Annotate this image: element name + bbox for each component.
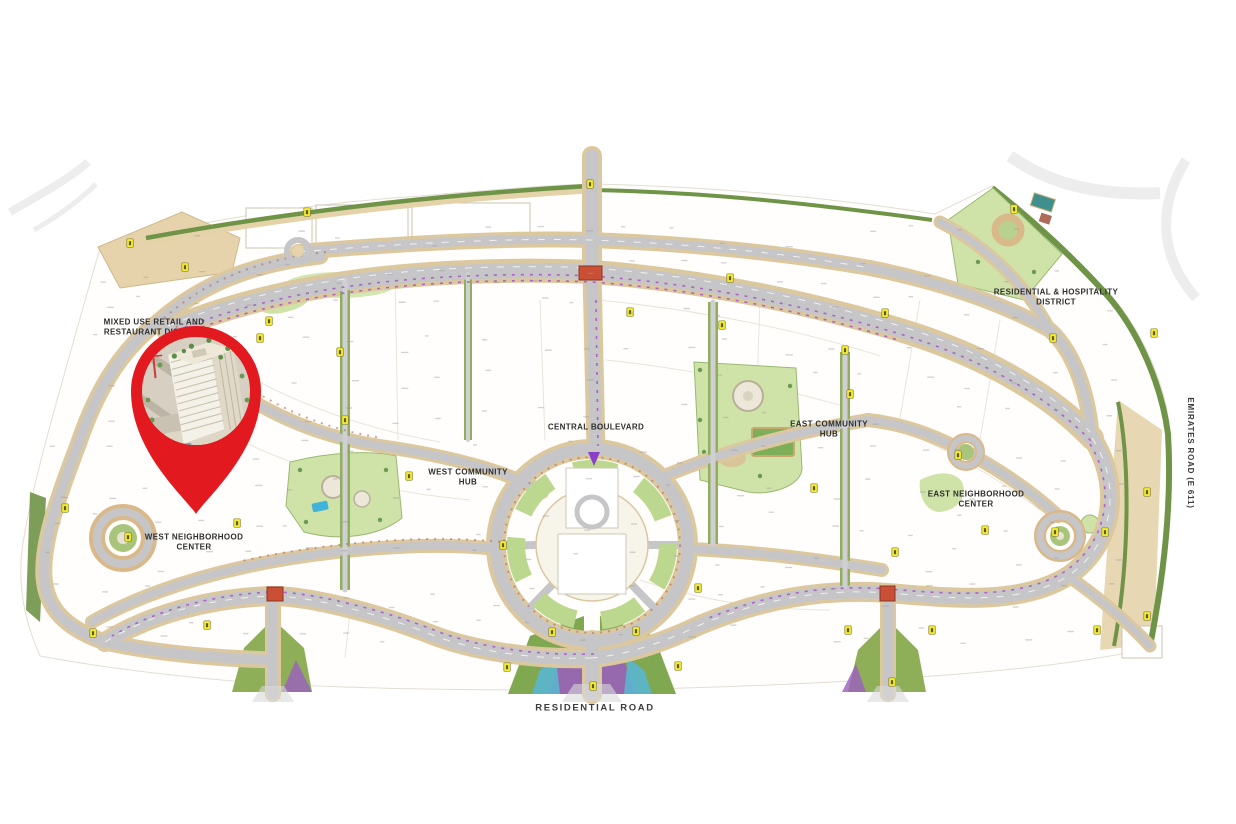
plot-number-speck: [160, 635, 167, 636]
plot-number-speck: [434, 300, 439, 301]
plot-number-speck: [288, 317, 293, 318]
plot-number-speck: [336, 282, 341, 283]
plot-number-speck: [476, 620, 481, 621]
plot-number-speck: [542, 515, 549, 516]
map-badge-number: [1054, 530, 1056, 534]
plot-number-speck: [136, 296, 140, 297]
label-line: EAST NEIGHBORHOOD: [928, 490, 1025, 499]
plot-number-speck: [761, 445, 765, 446]
plot-number-speck: [628, 312, 634, 313]
label-central-boulevard: CENTRAL BOULEVARD: [548, 422, 644, 432]
map-badge-number: [592, 684, 594, 688]
label-line: EMIRATES ROAD (E 611): [1186, 397, 1195, 508]
plot-number-speck: [1016, 564, 1022, 565]
label-residential-road: RESIDENTIAL ROAD: [535, 703, 654, 713]
plot-number-speck: [1115, 559, 1122, 560]
plot-number-speck: [347, 341, 354, 342]
plot-number-speck: [305, 421, 312, 422]
plot-number-speck: [93, 513, 98, 514]
plot-number-speck: [584, 348, 590, 349]
plot-number-speck: [545, 350, 552, 351]
plot-number-speck: [472, 550, 476, 551]
plot-number-speck: [833, 641, 840, 642]
plot-number-speck: [106, 446, 112, 447]
plot-number-speck: [584, 529, 590, 530]
map-badge-number: [677, 664, 679, 668]
plot-number-speck: [435, 418, 441, 419]
map-badge-number: [847, 628, 849, 632]
plot-number-speck: [821, 283, 827, 284]
label-line: CENTRAL BOULEVARD: [548, 422, 644, 431]
plot-number-speck: [964, 388, 970, 389]
plot-number-speck: [493, 605, 500, 606]
plot-number-speck: [723, 417, 729, 418]
plot-number-speck: [777, 281, 783, 282]
plot-number-speck: [1053, 372, 1058, 373]
plot-number-speck: [1050, 522, 1054, 523]
plot-number-speck: [786, 354, 793, 355]
plot-number-speck: [674, 555, 679, 556]
plot-number-speck: [689, 636, 696, 637]
plot-number-speck: [926, 585, 933, 586]
plot-number-speck: [485, 370, 491, 371]
plot-number-speck: [1016, 457, 1022, 458]
plot-number-speck: [767, 488, 772, 489]
plot-number-speck: [586, 230, 593, 231]
plot-number-speck: [106, 626, 113, 627]
map-badge-number: [844, 348, 846, 352]
plot-number-speck: [285, 264, 290, 265]
plot-number-speck: [1014, 228, 1020, 229]
plot-number-speck: [568, 441, 572, 442]
plot-number-speck: [335, 237, 340, 238]
plot-number-speck: [393, 497, 399, 498]
map-badge-number: [1104, 530, 1106, 534]
map-badge-number: [344, 418, 346, 422]
plot-number-speck: [538, 226, 544, 227]
plot-number-speck: [1107, 415, 1112, 416]
map-badge-number: [931, 628, 933, 632]
map-badge-number: [184, 265, 186, 269]
plot-number-speck: [306, 547, 313, 548]
map-badge-number: [884, 311, 886, 315]
label-residential-hospitality-district: RESIDENTIAL & HOSPITALITY DISTRICT: [994, 288, 1118, 307]
label-line: EAST COMMUNITY: [790, 420, 868, 429]
plot-number-speck: [300, 633, 307, 634]
plot-number-speck: [426, 489, 430, 490]
label-east-neighborhood-center: EAST NEIGHBORHOOD CENTER: [928, 490, 1025, 509]
plot-number-speck: [619, 634, 623, 635]
label-line: CENTER: [145, 542, 243, 552]
label-line: CENTER: [928, 499, 1025, 509]
map-badge-number: [891, 680, 893, 684]
plot-number-speck: [485, 226, 491, 227]
plot-number-speck: [529, 588, 534, 589]
plot-number-speck: [473, 444, 477, 445]
plot-number-speck: [580, 640, 586, 641]
plot-number-speck: [392, 423, 398, 424]
plot-number-speck: [425, 335, 429, 336]
plot-number-speck: [61, 497, 68, 498]
map-badge-number: [635, 629, 637, 633]
map-badge-number: [589, 182, 591, 186]
plot-number-speck: [719, 526, 724, 527]
plot-number-speck: [969, 583, 975, 584]
plot-number-speck: [199, 271, 205, 272]
plot-number-speck: [189, 622, 194, 623]
plot-number-speck: [253, 458, 260, 459]
plot-number-speck: [785, 567, 792, 568]
plot-number-speck: [909, 225, 914, 226]
map-badge-number: [729, 276, 731, 280]
plot-number-speck: [380, 641, 385, 642]
plot-number-speck: [1054, 557, 1059, 558]
plot-number-speck: [957, 406, 962, 407]
label-line: RESIDENTIAL ROAD: [535, 702, 654, 713]
plot-number-speck: [55, 523, 61, 524]
map-badge-number: [259, 336, 261, 340]
plot-number-speck: [630, 552, 636, 553]
map-badge-number: [129, 241, 131, 245]
plot-number-speck: [588, 273, 595, 274]
plot-number-speck: [818, 447, 823, 448]
plot-number-speck: [1067, 631, 1074, 632]
plot-number-speck: [957, 229, 962, 230]
plot-number-speck: [526, 559, 531, 560]
plot-number-speck: [1103, 344, 1108, 345]
plot-number-speck: [1025, 639, 1032, 640]
plot-number-speck: [333, 478, 338, 479]
plot-number-speck: [1115, 450, 1122, 451]
plot-number-speck: [681, 404, 687, 405]
plot-number-speck: [865, 478, 870, 479]
plot-number-speck: [830, 588, 837, 589]
plot-number-speck: [908, 296, 913, 297]
plot-number-speck: [195, 235, 200, 236]
plot-number-speck: [761, 586, 765, 587]
plot-number-speck: [731, 450, 738, 451]
plot-number-speck: [583, 416, 589, 417]
plot-number-speck: [1055, 488, 1060, 489]
plot-number-speck: [50, 446, 55, 447]
map-badge-number: [1013, 207, 1015, 211]
plot-number-speck: [143, 488, 148, 489]
plot-number-speck: [389, 607, 395, 608]
plot-number-speck: [1109, 583, 1115, 584]
plot-number-speck: [920, 491, 926, 492]
plot-number-speck: [873, 297, 879, 298]
plot-number-speck: [629, 585, 635, 586]
plot-number-speck: [433, 621, 438, 622]
plot-number-speck: [870, 445, 876, 446]
plot-number-speck: [1111, 379, 1117, 380]
plot-number-speck: [587, 379, 594, 380]
plot-number-speck: [633, 476, 639, 477]
map-badge-number: [206, 623, 208, 627]
plot-number-speck: [302, 440, 309, 441]
label-east-community-hub: EAST COMMUNITY HUB: [790, 420, 868, 439]
map-badge-number: [408, 474, 410, 478]
plot-number-speck: [631, 523, 637, 524]
plot-number-speck: [108, 385, 115, 386]
plot-number-speck: [108, 420, 115, 421]
plot-number-speck: [688, 598, 695, 599]
plot-number-speck: [401, 388, 408, 389]
plot-number-speck: [923, 449, 930, 450]
plot-number-speck: [954, 449, 958, 450]
plot-number-speck: [109, 498, 116, 499]
plot-number-speck: [1107, 310, 1113, 311]
plot-number-speck: [333, 299, 338, 300]
plot-number-speck: [814, 558, 819, 559]
plot-number-speck: [716, 315, 721, 316]
label-line: HUB: [790, 429, 868, 439]
plot-number-speck: [430, 594, 435, 595]
plot-number-speck: [493, 282, 500, 283]
map-badge-number: [502, 543, 504, 547]
plot-number-speck: [681, 260, 687, 261]
plot-number-speck: [482, 339, 487, 340]
plot-number-speck: [730, 624, 736, 625]
plot-number-speck: [53, 583, 59, 584]
map-badge-number: [268, 319, 270, 323]
plot-number-speck: [45, 552, 50, 553]
map-badge-number: [506, 665, 508, 669]
plot-number-speck: [870, 231, 876, 232]
map-badge-number: [1052, 336, 1054, 340]
plot-number-speck: [640, 452, 647, 453]
plot-number-speck: [873, 423, 879, 424]
plot-number-speck: [762, 412, 766, 413]
plot-number-speck: [107, 307, 114, 308]
plot-number-speck: [722, 338, 727, 339]
plot-number-speck: [1013, 606, 1019, 607]
plot-number-speck: [677, 462, 683, 463]
plot-number-speck: [432, 245, 437, 246]
plot-number-speck: [343, 632, 349, 633]
plot-number-speck: [93, 334, 98, 335]
plot-number-speck: [964, 314, 970, 315]
map-badge-number: [92, 631, 94, 635]
plot-number-speck: [720, 243, 725, 244]
plot-number-speck: [439, 270, 445, 271]
plot-number-speck: [569, 302, 573, 303]
plot-number-speck: [542, 297, 549, 298]
plot-number-speck: [1054, 270, 1059, 271]
plot-number-speck: [828, 348, 835, 349]
plot-number-speck: [378, 520, 382, 521]
plot-number-speck: [343, 521, 349, 522]
plot-number-speck: [247, 304, 253, 305]
plot-number-speck: [243, 633, 249, 634]
map-badge-number: [1146, 614, 1148, 618]
plot-number-speck: [283, 525, 287, 526]
plot-number-speck: [666, 484, 670, 485]
plot-number-speck: [715, 564, 719, 565]
plot-number-speck: [302, 336, 309, 337]
plot-number-speck: [674, 520, 679, 521]
plot-number-speck: [831, 307, 838, 308]
map-badge-number: [813, 486, 815, 490]
plot-number-speck: [769, 512, 774, 513]
plot-number-speck: [623, 348, 628, 349]
plot-number-speck: [434, 377, 439, 378]
plot-number-speck: [857, 373, 861, 374]
plot-number-speck: [1119, 483, 1126, 484]
plot-number-speck: [718, 374, 723, 375]
plot-number-speck: [834, 498, 841, 499]
label-west-neighborhood-center: WEST NEIGHBORHOOD CENTER: [145, 533, 243, 552]
map-badge-number: [849, 392, 851, 396]
map-badge-number: [1153, 331, 1155, 335]
plot-number-speck: [918, 627, 924, 628]
map-badge-number: [127, 535, 129, 539]
map-badge-number: [1096, 628, 1098, 632]
plot-number-speck: [401, 352, 408, 353]
plot-number-speck: [343, 597, 349, 598]
plot-number-speck: [532, 280, 538, 281]
plot-number-speck: [1060, 460, 1066, 461]
plot-number-speck: [347, 451, 354, 452]
map-badge-number: [984, 528, 986, 532]
plot-number-speck: [476, 534, 481, 535]
plot-number-speck: [1061, 585, 1067, 586]
plot-number-speck: [1003, 530, 1008, 531]
master-plan-page: MIXED USE RETAIL AND RESTAURANT DISTRICT…: [0, 0, 1236, 824]
label-west-community-hub: WEST COMMUNITY HUB: [428, 468, 508, 487]
plot-number-speck: [298, 230, 305, 231]
plot-number-speck: [1011, 382, 1017, 383]
map-badge-number: [306, 210, 308, 214]
plot-number-speck: [1053, 410, 1058, 411]
label-line: MIXED USE RETAIL AND: [104, 318, 205, 327]
plot-number-speck: [961, 643, 966, 644]
label-line: HUB: [428, 477, 508, 487]
plot-number-speck: [341, 550, 347, 551]
plot-number-speck: [143, 277, 148, 278]
plot-number-speck: [669, 227, 674, 228]
label-line: RESIDENTIAL & HOSPITALITY: [994, 288, 1118, 297]
plot-number-speck: [538, 407, 544, 408]
plot-number-speck: [786, 246, 793, 247]
plot-number-speck: [198, 520, 204, 521]
plot-number-speck: [881, 605, 888, 606]
label-line: WEST NEIGHBORHOOD: [145, 533, 243, 542]
plot-number-speck: [393, 547, 399, 548]
plot-number-speck: [291, 382, 297, 383]
plot-number-speck: [908, 535, 913, 536]
map-badge-number: [1146, 490, 1148, 494]
plot-number-speck: [482, 410, 487, 411]
plot-number-speck: [233, 336, 237, 337]
plot-number-speck: [255, 485, 262, 486]
plot-number-speck: [145, 585, 150, 586]
plot-number-speck: [1005, 408, 1010, 409]
plot-number-speck: [245, 551, 251, 552]
plot-number-speck: [287, 489, 292, 490]
label-emirates-road: EMIRATES ROAD (E 611): [1185, 397, 1195, 508]
plot-number-speck: [832, 525, 839, 526]
plot-number-speck: [683, 308, 690, 309]
plot-number-speck: [976, 348, 983, 349]
plot-number-speck: [952, 548, 956, 549]
plot-number-speck: [957, 514, 962, 515]
map-badge-number: [64, 506, 66, 510]
plot-number-speck: [352, 380, 359, 381]
plot-number-speck: [1004, 281, 1009, 282]
label-line: WEST COMMUNITY: [428, 468, 508, 477]
plot-number-speck: [721, 262, 726, 263]
plot-number-speck: [157, 571, 164, 572]
plot-number-speck: [861, 263, 866, 264]
plot-number-speck: [864, 638, 869, 639]
map-badge-number: [957, 453, 959, 457]
plot-number-speck: [629, 260, 635, 261]
plot-number-speck: [573, 553, 578, 554]
plot-number-speck: [346, 407, 352, 408]
plot-number-speck: [925, 571, 932, 572]
plot-number-speck: [907, 347, 911, 348]
plot-number-speck: [256, 525, 263, 526]
map-badge-number: [236, 521, 238, 525]
plot-number-speck: [718, 594, 723, 595]
plot-number-speck: [102, 591, 108, 592]
plot-number-speck: [737, 495, 744, 496]
plot-number-speck: [256, 274, 263, 275]
plot-number-speck: [586, 478, 592, 479]
map-badge-number: [551, 630, 553, 634]
plot-number-speck: [688, 347, 695, 348]
plot-number-speck: [387, 274, 393, 275]
plot-number-speck: [1002, 485, 1006, 486]
plot-number-speck: [813, 372, 818, 373]
map-badge-number: [697, 586, 699, 590]
plot-number-speck: [194, 303, 199, 304]
plot-number-speck: [101, 281, 107, 282]
plot-number-speck: [924, 275, 931, 276]
plot-number-speck: [927, 376, 934, 377]
map-badge-number: [339, 350, 341, 354]
plot-number-speck: [399, 302, 406, 303]
plot-number-speck: [621, 226, 626, 227]
map-badge-number: [894, 550, 896, 554]
label-line: DISTRICT: [994, 297, 1118, 307]
plot-number-speck: [155, 522, 162, 523]
plot-number-speck: [525, 622, 530, 623]
plot-number-speck: [859, 530, 864, 531]
map-badge-number: [721, 323, 723, 327]
plot-number-speck: [1012, 317, 1018, 318]
